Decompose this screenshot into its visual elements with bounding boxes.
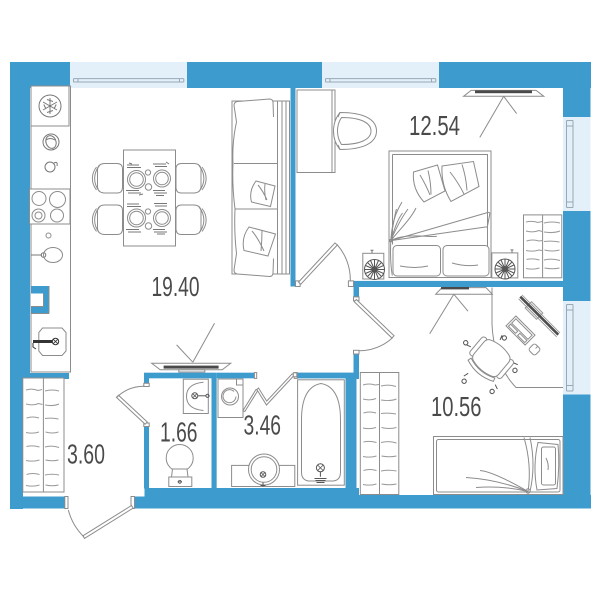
svg-text:19.40: 19.40 (152, 271, 200, 302)
svg-text:3.60: 3.60 (67, 439, 105, 470)
svg-text:1.66: 1.66 (160, 417, 198, 448)
svg-text:12.54: 12.54 (409, 110, 460, 141)
svg-text:3.46: 3.46 (244, 410, 282, 441)
svg-text:10.56: 10.56 (431, 391, 482, 422)
